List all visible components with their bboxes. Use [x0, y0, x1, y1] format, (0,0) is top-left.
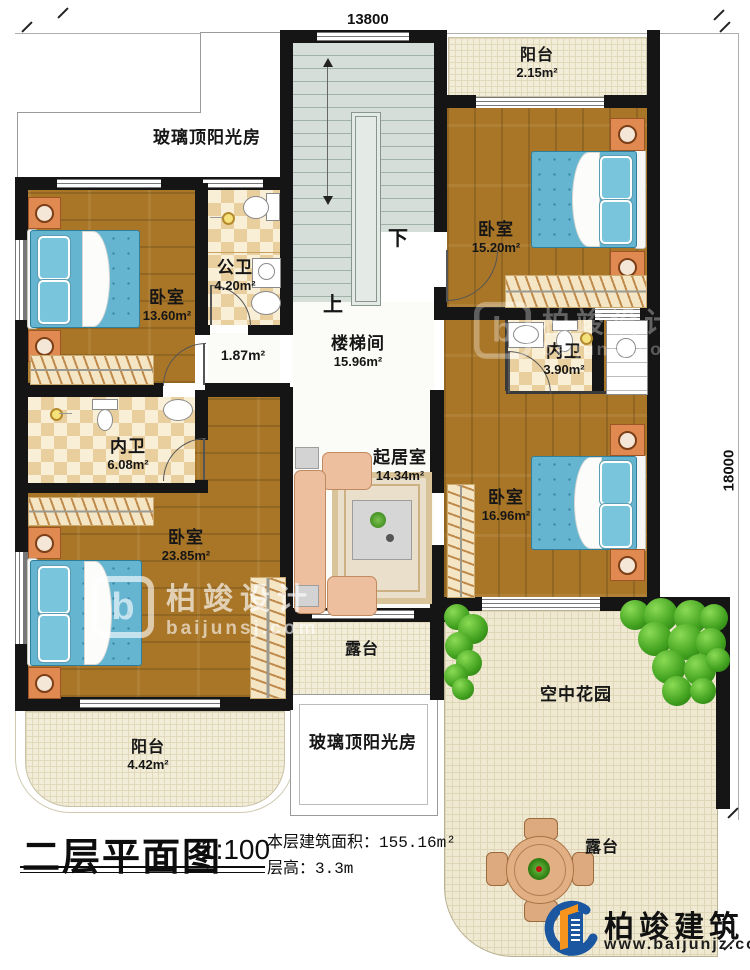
toilet-bowl: [243, 196, 269, 219]
closet-basin: [616, 338, 636, 358]
wall-living-right: [430, 390, 444, 493]
sunroom-step-line: [17, 112, 201, 113]
bush: [662, 676, 692, 706]
side-table: [295, 585, 319, 607]
garden-slider: [482, 599, 600, 608]
terrace-mid-floor: [293, 622, 430, 697]
wardrobe: [505, 275, 647, 308]
brand-logo-icon: [540, 898, 598, 962]
bed-pillow: [600, 200, 632, 244]
nightstand: [610, 549, 645, 581]
window: [317, 32, 409, 41]
room-label-bedroom-bl: 卧室 23.85m²: [162, 528, 210, 564]
bed-pillow: [38, 614, 70, 662]
toilet-bowl: [97, 409, 113, 431]
title-underline: [20, 872, 265, 873]
bed-pillow: [600, 504, 632, 548]
plan-area-total: 本层建筑面积：155.16m²: [267, 828, 456, 852]
wall-bedroom-tr-top: [434, 95, 476, 108]
door-leaf: [446, 250, 448, 302]
wall-bath3-right: [592, 320, 604, 393]
door-leaf: [210, 285, 212, 325]
bath-divider: [208, 252, 280, 253]
stair-arrow-head: [323, 196, 333, 205]
dimension-line-right: [738, 33, 739, 820]
wall-bath6-right: [195, 390, 208, 440]
room-label-sunroom-bottom: 玻璃顶阳光房: [309, 733, 417, 753]
brand-site: www.baijunjz.com: [604, 936, 750, 954]
table-decor: [386, 534, 394, 542]
wall-bath-public-bottom: [248, 325, 293, 335]
wall-bath6-bottom: [25, 483, 205, 493]
wall-mid-horizontal: [15, 383, 163, 397]
dimension-tick: [727, 807, 738, 818]
chair: [486, 852, 508, 886]
room-label-living: 起居室 14.34m²: [373, 448, 427, 484]
armchair: [327, 576, 377, 616]
bed-duvet: [574, 457, 602, 549]
plan-scale: 1:100: [200, 834, 270, 866]
shower-cord: [210, 217, 223, 218]
sink: [251, 291, 281, 315]
room-label-terrace-br: 露台: [585, 838, 619, 857]
stair-up-label: 上: [323, 288, 343, 317]
wall-terrace-right: [430, 610, 444, 700]
dimension-top-value: 13800: [347, 11, 389, 28]
wardrobe: [28, 497, 154, 526]
bed-pillow: [38, 566, 70, 614]
title-underline: [20, 866, 265, 868]
room-label-sunroom-top: 玻璃顶阳光房: [153, 128, 261, 148]
room-label-balcony-bottom: 阳台 4.42m²: [127, 738, 168, 773]
nightstand: [610, 118, 645, 151]
dimension-tick: [57, 7, 68, 18]
nightstand: [28, 197, 61, 229]
room-label-stairwell: 楼梯间 15.96m²: [331, 334, 385, 370]
room-label-garden: 空中花园: [540, 685, 612, 705]
bed-pillow: [38, 236, 70, 280]
room-label-balcony-top: 阳台 2.15m²: [516, 46, 557, 81]
room-label-bath-inner-right: 内卫 3.90m²: [543, 342, 584, 378]
plan-floor-height: 层高：3.3m: [267, 854, 353, 878]
floor-plan-canvas: 13800 18000: [0, 0, 750, 970]
stair-rail: [351, 112, 381, 306]
washing-machine-door: [258, 263, 275, 280]
door-leaf: [203, 343, 205, 385]
wall-bath-public-left: [195, 183, 208, 325]
room-label-hallway: 1.87m²: [221, 347, 265, 364]
window: [80, 699, 220, 708]
shower-fixture: [222, 212, 235, 225]
wall-bath-public-bottom: [195, 325, 210, 335]
coffee-table: [352, 500, 412, 560]
bush: [706, 648, 730, 672]
wardrobe: [250, 577, 286, 699]
closet-slider: [595, 309, 640, 318]
wall-stub: [640, 307, 660, 320]
side-table: [295, 447, 319, 469]
bush: [690, 678, 716, 704]
room-label-bedroom-tr: 卧室 15.20m²: [472, 220, 520, 256]
bush: [452, 678, 474, 700]
dimension-tick: [713, 9, 724, 20]
bed-pillow: [600, 461, 632, 505]
stair-direction-line: [327, 62, 328, 202]
shower-cord: [59, 413, 72, 414]
sink: [513, 325, 539, 344]
bed-duvet: [572, 152, 600, 247]
wardrobe: [30, 355, 154, 385]
dimension-right-value: 18000: [720, 450, 737, 492]
wardrobe: [447, 484, 475, 598]
room-label-bedroom-right: 卧室 16.96m²: [482, 488, 530, 524]
bed-pillow: [600, 156, 632, 200]
room-label-bedroom-left: 卧室 13.60m²: [143, 288, 191, 324]
room-label-bath-inner-left: 内卫 6.08m²: [107, 437, 148, 473]
dimension-tick: [719, 21, 730, 32]
dimension-tick: [21, 21, 32, 32]
stair-down-label: 下: [388, 222, 408, 251]
balcony-slider: [476, 97, 604, 106]
stair-arrow-head: [323, 58, 333, 67]
nightstand: [610, 424, 645, 456]
window: [203, 179, 263, 188]
armchair: [322, 452, 372, 490]
window: [57, 179, 161, 188]
nightstand: [28, 667, 61, 699]
sunroom-bottom-inner: [299, 704, 428, 805]
bed-pillow: [38, 280, 70, 324]
wall-right-outer: [647, 30, 660, 610]
nightstand: [28, 527, 61, 559]
wall-stair-right: [434, 30, 447, 232]
table-plant-flower: [536, 866, 542, 872]
door-leaf: [508, 351, 510, 393]
wall-mid-horizontal: [205, 383, 290, 397]
wall-bedroom-tr-bottom: [434, 307, 595, 320]
door-leaf: [203, 438, 205, 480]
shower-fixture: [50, 408, 63, 421]
sink: [163, 399, 193, 421]
wall-stair-left: [280, 30, 293, 332]
room-label-terrace-mid: 露台: [345, 640, 379, 659]
table-plant: [370, 512, 386, 528]
room-label-bath-public: 公卫 4.20m²: [214, 258, 255, 294]
